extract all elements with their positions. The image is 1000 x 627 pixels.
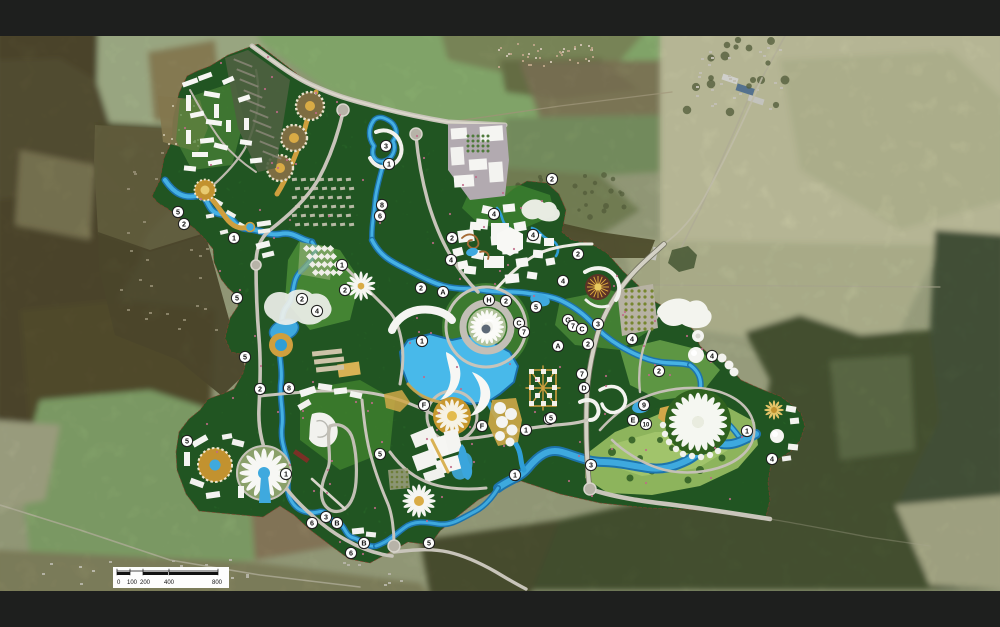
svg-text:B: B: [334, 518, 339, 527]
svg-text:6: 6: [310, 518, 314, 527]
svg-text:1: 1: [524, 425, 528, 434]
svg-text:E: E: [631, 415, 636, 424]
svg-text:1: 1: [284, 469, 288, 478]
svg-text:2: 2: [343, 285, 347, 294]
svg-text:6: 6: [378, 211, 382, 220]
svg-text:A: A: [440, 287, 445, 296]
svg-text:5: 5: [176, 207, 180, 216]
svg-text:5: 5: [427, 538, 431, 547]
svg-text:10: 10: [643, 422, 650, 428]
svg-text:H: H: [486, 295, 491, 304]
svg-text:1: 1: [745, 426, 749, 435]
svg-text:4: 4: [492, 209, 496, 218]
svg-text:1: 1: [387, 159, 391, 168]
svg-text:7: 7: [571, 321, 575, 330]
svg-text:5: 5: [378, 449, 382, 458]
svg-text:7: 7: [580, 369, 584, 378]
svg-text:9: 9: [642, 400, 646, 409]
svg-text:4: 4: [770, 454, 774, 463]
svg-text:8: 8: [287, 383, 291, 392]
svg-text:800: 800: [212, 580, 223, 586]
svg-text:4: 4: [630, 334, 634, 343]
svg-text:2: 2: [182, 219, 186, 228]
svg-text:2: 2: [576, 249, 580, 258]
svg-text:F: F: [480, 421, 485, 430]
svg-text:5: 5: [235, 293, 239, 302]
svg-text:2: 2: [550, 174, 554, 183]
svg-text:5: 5: [549, 413, 553, 422]
svg-text:4: 4: [531, 230, 535, 239]
svg-text:2: 2: [300, 294, 304, 303]
svg-text:3: 3: [384, 141, 388, 150]
svg-text:200: 200: [140, 580, 151, 586]
svg-text:4: 4: [710, 351, 714, 360]
svg-text:F: F: [422, 400, 427, 409]
svg-text:D: D: [581, 383, 586, 392]
svg-text:3: 3: [324, 512, 328, 521]
svg-text:100: 100: [127, 580, 138, 586]
svg-text:5: 5: [534, 302, 538, 311]
svg-text:1: 1: [420, 336, 424, 345]
svg-text:2: 2: [504, 296, 508, 305]
svg-text:2: 2: [419, 283, 423, 292]
svg-text:B: B: [361, 538, 366, 547]
svg-text:8: 8: [380, 200, 384, 209]
svg-text:5: 5: [243, 352, 247, 361]
svg-text:2: 2: [586, 339, 590, 348]
svg-text:3: 3: [589, 460, 593, 469]
svg-text:2: 2: [657, 366, 661, 375]
svg-text:4: 4: [449, 255, 453, 264]
svg-text:3: 3: [596, 319, 600, 328]
svg-text:6: 6: [349, 548, 353, 557]
svg-text:C: C: [516, 318, 521, 327]
svg-text:1: 1: [340, 260, 344, 269]
svg-text:1: 1: [232, 233, 236, 242]
svg-text:5: 5: [185, 436, 189, 445]
svg-text:1: 1: [513, 470, 517, 479]
svg-text:2: 2: [258, 384, 262, 393]
svg-text:2: 2: [450, 233, 454, 242]
svg-text:A: A: [555, 341, 560, 350]
svg-text:4: 4: [315, 306, 319, 315]
svg-text:C: C: [579, 324, 584, 333]
svg-text:4: 4: [561, 276, 565, 285]
svg-text:7: 7: [522, 327, 526, 336]
svg-text:400: 400: [164, 580, 175, 586]
